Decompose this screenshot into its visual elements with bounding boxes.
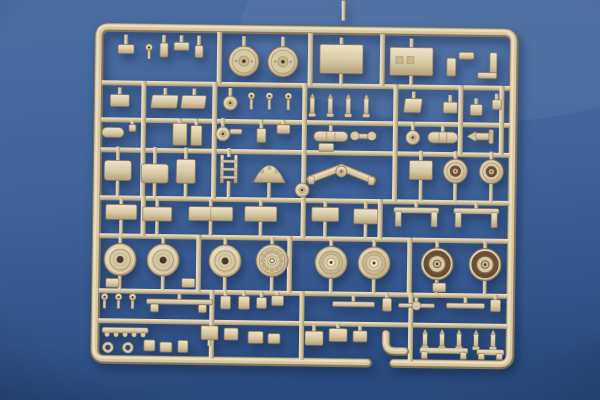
vignette-overlay: [0, 0, 600, 400]
sprue-photo: [0, 0, 600, 400]
product-photo: [0, 0, 600, 400]
